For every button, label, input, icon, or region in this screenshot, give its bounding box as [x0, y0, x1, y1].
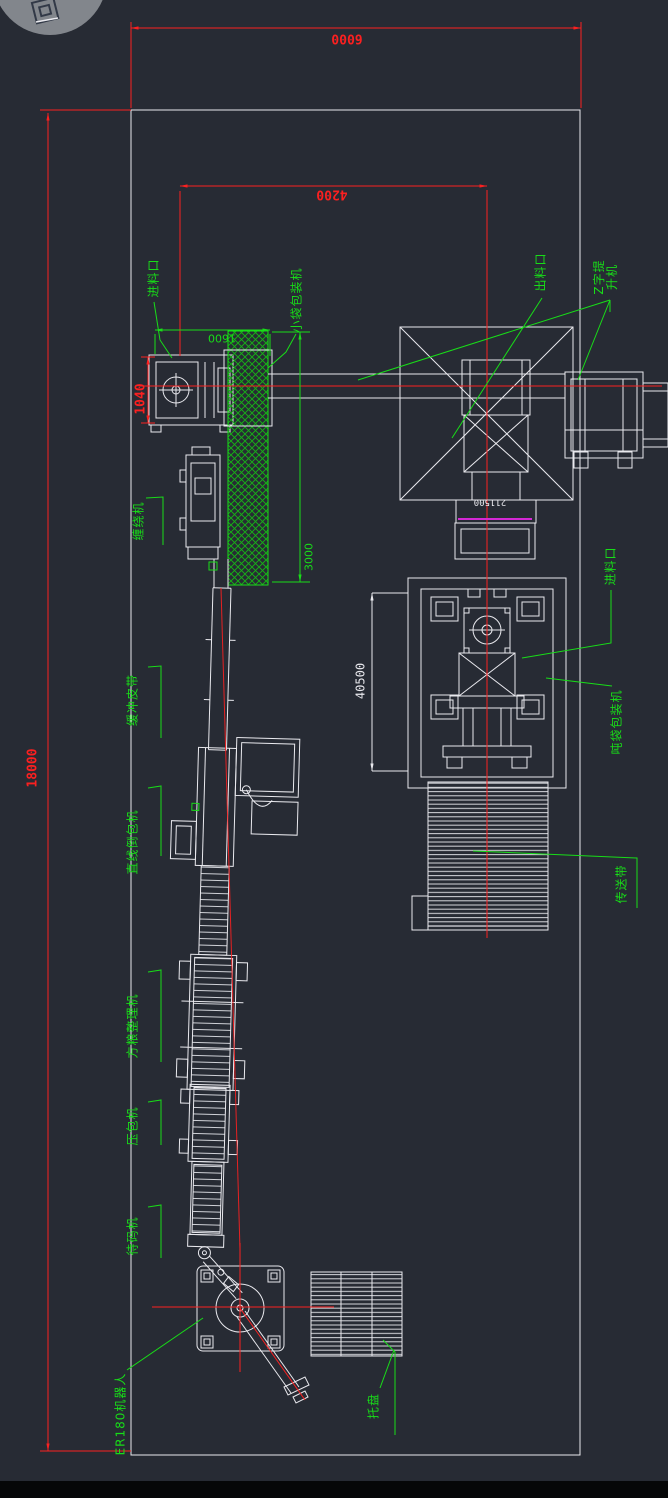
dim-text-1600[interactable]: 1600	[208, 332, 236, 345]
dim-text-4200[interactable]: 4200	[316, 188, 347, 201]
label-small-bag-packer[interactable]: 小袋包装机	[291, 267, 304, 332]
dim-text-3000[interactable]: 3000	[303, 543, 316, 571]
bottom-bar	[0, 1481, 668, 1498]
conveyor-belt-hatched[interactable]	[412, 782, 548, 930]
label-robot-er180[interactable]: ER180机器人	[115, 1373, 128, 1456]
label-inline-bag-turner[interactable]: 直线倒包机	[127, 809, 140, 874]
dim-text-1040[interactable]: 1040	[135, 383, 148, 414]
label-feed-inlet-right[interactable]: 进料口	[605, 546, 618, 585]
dim-text-40500[interactable]: 40500	[355, 663, 368, 699]
pallet[interactable]	[311, 1272, 402, 1356]
label-bag-shaping-machine[interactable]: 方粮整理机	[127, 993, 140, 1058]
infeed-machine[interactable]	[149, 355, 233, 432]
label-ton-bag-packer[interactable]: 吨袋包装机	[611, 689, 624, 754]
label-conveyor-belt[interactable]: 传送带	[616, 864, 629, 903]
dimension-40500[interactable]	[372, 593, 408, 771]
cad-canvas: 6000 4200 1600 1040 3000 18000 40500 211…	[0, 0, 668, 1498]
label-z-elevator[interactable]: Z字提升机	[593, 256, 619, 298]
label-bag-press[interactable]: 压包机	[127, 1106, 140, 1145]
logo-watermark	[0, 0, 107, 35]
wrapping-machine[interactable]	[180, 447, 228, 588]
label-staging-conveyor[interactable]: 待码机	[127, 1216, 140, 1255]
dim-text-6000[interactable]: 6000	[331, 32, 362, 45]
label-discharge-outlet[interactable]: 出料口	[535, 252, 548, 291]
red-dimensions[interactable]	[40, 22, 581, 1451]
drawing-geometry	[0, 0, 668, 1498]
z-elevator-strip[interactable]	[224, 331, 272, 585]
dim-text-18000[interactable]: 18000	[27, 748, 40, 787]
label-wrapping-machine[interactable]: 缠绕机	[133, 501, 146, 540]
label-buffer-belt[interactable]: 缓冲皮带	[127, 674, 140, 726]
dim-text-211500[interactable]: 211500	[474, 495, 507, 508]
label-feed-inlet-left[interactable]: 进料口	[148, 258, 161, 297]
label-pallet[interactable]: 托盘	[368, 1393, 381, 1419]
